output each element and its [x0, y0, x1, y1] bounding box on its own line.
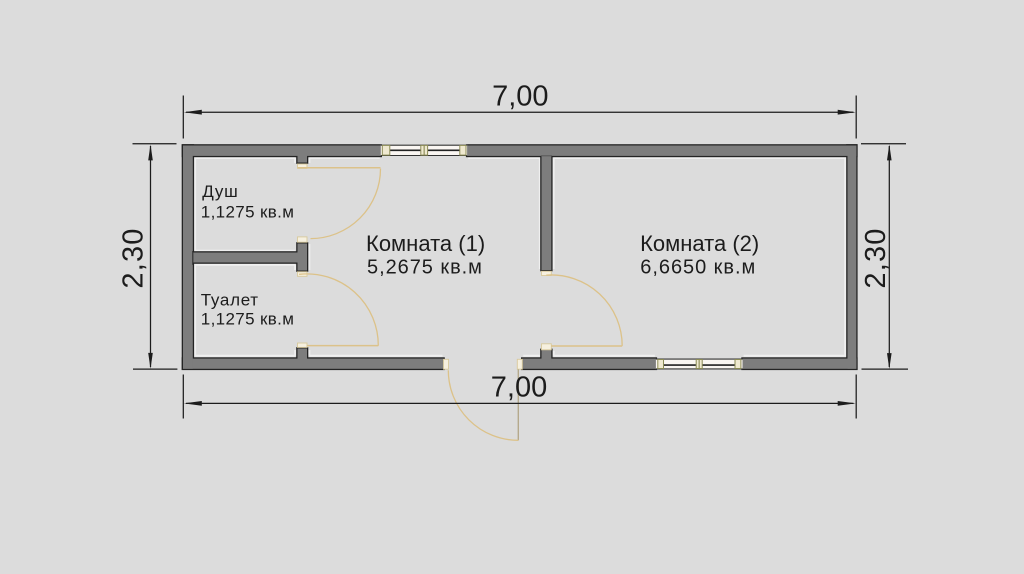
- svg-text:7,00: 7,00: [492, 81, 548, 113]
- svg-text:Комната (1): Комната (1): [366, 231, 485, 256]
- svg-text:Туалет: Туалет: [201, 291, 259, 310]
- svg-text:1,1275 кв.м: 1,1275 кв.м: [201, 310, 294, 329]
- svg-text:1,1275 кв.м: 1,1275 кв.м: [201, 202, 294, 221]
- svg-text:Комната (2): Комната (2): [640, 231, 759, 256]
- svg-text:Душ: Душ: [202, 182, 238, 201]
- svg-text:2,30: 2,30: [860, 227, 892, 288]
- svg-text:7,00: 7,00: [491, 371, 547, 403]
- svg-text:5,2675 кв.м: 5,2675 кв.м: [367, 256, 483, 278]
- svg-text:2,30: 2,30: [118, 227, 150, 288]
- svg-text:6,6650 кв.м: 6,6650 кв.м: [640, 256, 756, 278]
